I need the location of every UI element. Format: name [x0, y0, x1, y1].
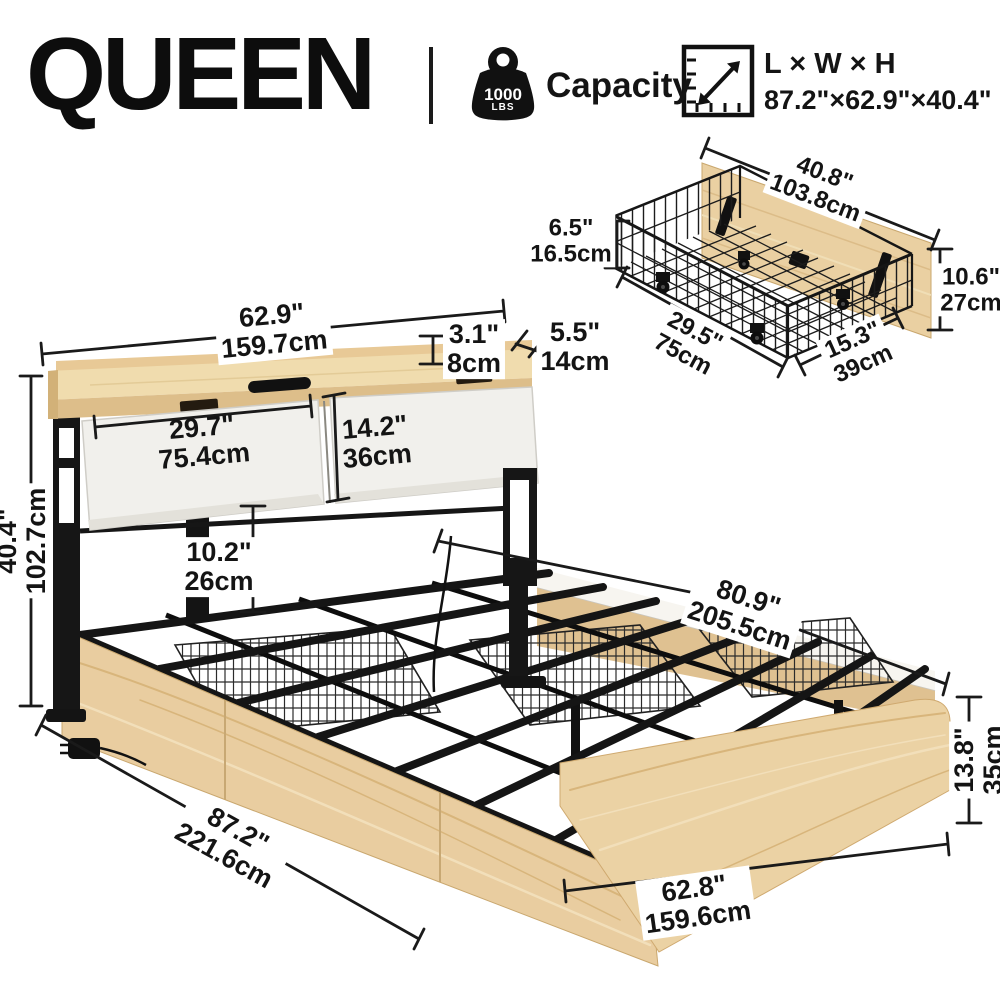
dim-shelf-depth: 5.5"14cm [536, 317, 613, 377]
dim-shelf-lip-height: 3.1"8cm [443, 319, 505, 379]
overall-dimensions-value: 87.2"×62.9"×40.4" [764, 85, 992, 116]
size-title: QUEEN [26, 22, 372, 125]
capacity-weight-value: 1000 [471, 86, 535, 103]
capacity-weight-unit: LBS [471, 103, 535, 113]
ruler-dimensions-icon [684, 47, 752, 115]
dim-cushion-height: 14.2"36cm [335, 409, 417, 475]
product-diagram-artwork [0, 0, 1000, 1000]
dim-left-cushion-width: 29.7"75.4cm [151, 408, 255, 476]
dim-drawer-basket-height: 6.5"16.5cm [526, 214, 615, 267]
headboard-left-leg [46, 413, 86, 722]
dim-total-height: 40.4"102.7cm [0, 484, 52, 599]
dim-headboard-width: 62.9"159.7cm [213, 295, 333, 365]
capacity-label: Capacity [546, 66, 692, 106]
dim-footboard-height: 13.8"35cm [949, 721, 1000, 798]
dim-under-clearance: 10.2"26cm [180, 537, 257, 597]
dim-drawer-panel-height: 10.6"27cm [936, 263, 1000, 316]
product-spec-sheet: QUEEN 1000 LBS Capacity L × W × H 87.2"×… [0, 0, 1000, 1000]
header-divider [429, 47, 433, 124]
overall-dimensions-label: L × W × H [764, 48, 896, 81]
